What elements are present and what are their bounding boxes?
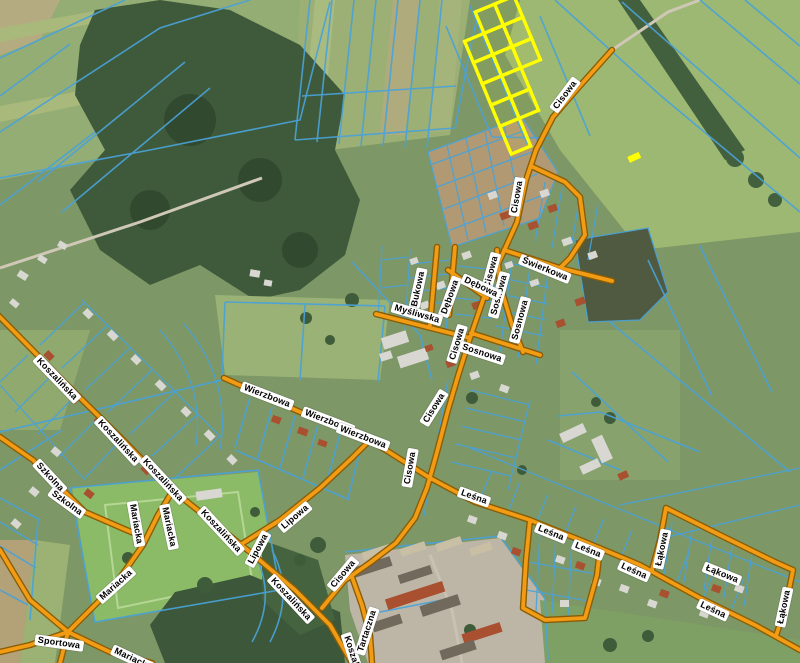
map-viewport[interactable]: CisowaCisowaCisowaCisowaCisowaCisowaCiso… bbox=[0, 0, 800, 663]
aerial-imagery-layer bbox=[0, 0, 800, 663]
terrain-layer bbox=[0, 0, 800, 663]
